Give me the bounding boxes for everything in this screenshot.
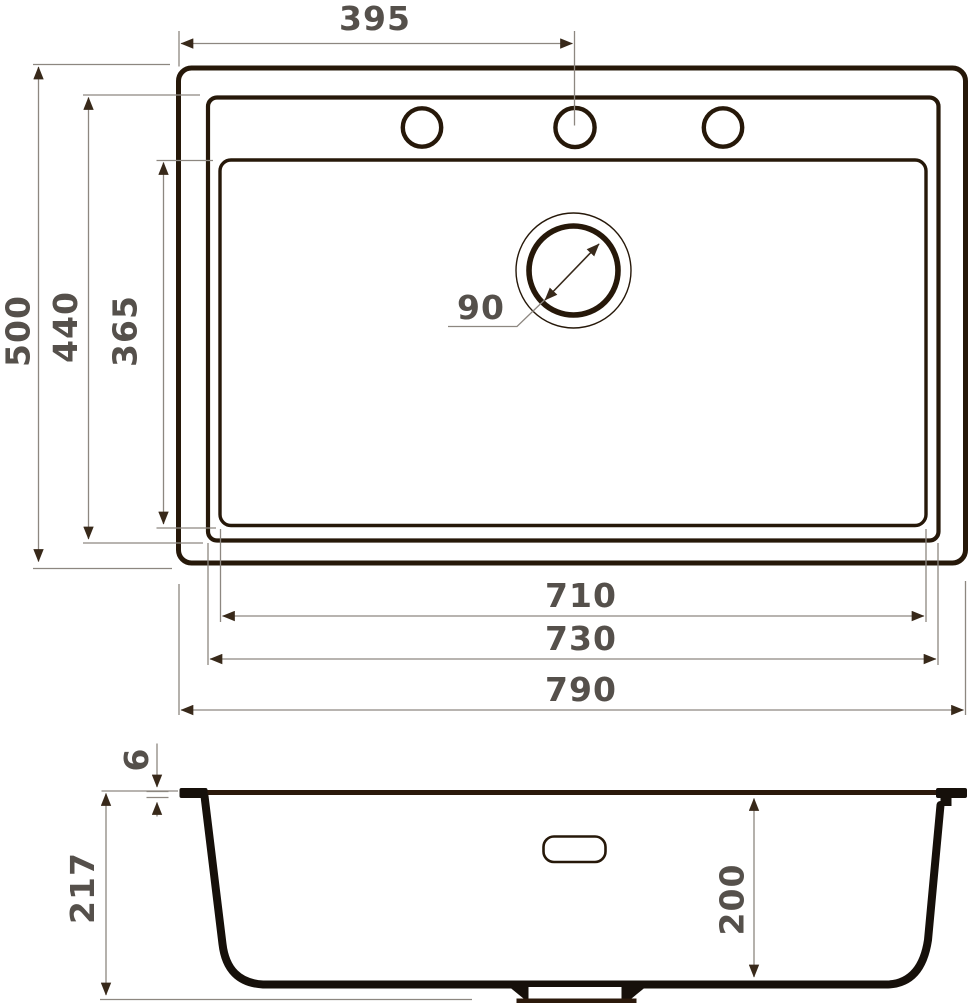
- sink-rim-edge: [208, 98, 939, 541]
- sink-bowl-edge: [220, 160, 926, 526]
- overflow-opening: [544, 837, 606, 863]
- faucet-hole-right: [704, 108, 742, 146]
- drain-fitting-base: [517, 999, 637, 1004]
- drain-fitting-gap: [529, 987, 622, 1000]
- dim-label-440: 440: [46, 291, 85, 363]
- sink-dimension-drawing: 395 500 440 365 90 710 730 790: [0, 0, 972, 1004]
- dim-label-730: 730: [545, 619, 617, 658]
- side-view-dimensions: 6 217 200: [63, 744, 754, 1000]
- top-view: [179, 68, 966, 563]
- faucet-hole-left: [403, 108, 441, 146]
- dim-label-6: 6: [117, 748, 156, 772]
- bowl-cross-section: [205, 796, 941, 985]
- dim-label-790: 790: [545, 670, 617, 709]
- side-view: [180, 788, 968, 1003]
- dim-label-365: 365: [105, 295, 144, 367]
- dim-label-90: 90: [457, 288, 505, 327]
- dim-label-710: 710: [545, 576, 617, 615]
- dim-label-217: 217: [63, 852, 102, 924]
- dim-label-500: 500: [0, 295, 37, 367]
- dim-label-200: 200: [712, 864, 751, 936]
- top-view-dimensions: 395 500 440 365 90 710 730 790: [0, 0, 966, 715]
- rim-right-tab: [941, 794, 952, 806]
- technical-drawing-page: 395 500 440 365 90 710 730 790: [0, 0, 972, 1004]
- drain-diameter-arrow: [545, 244, 599, 300]
- dim-label-395: 395: [339, 0, 411, 38]
